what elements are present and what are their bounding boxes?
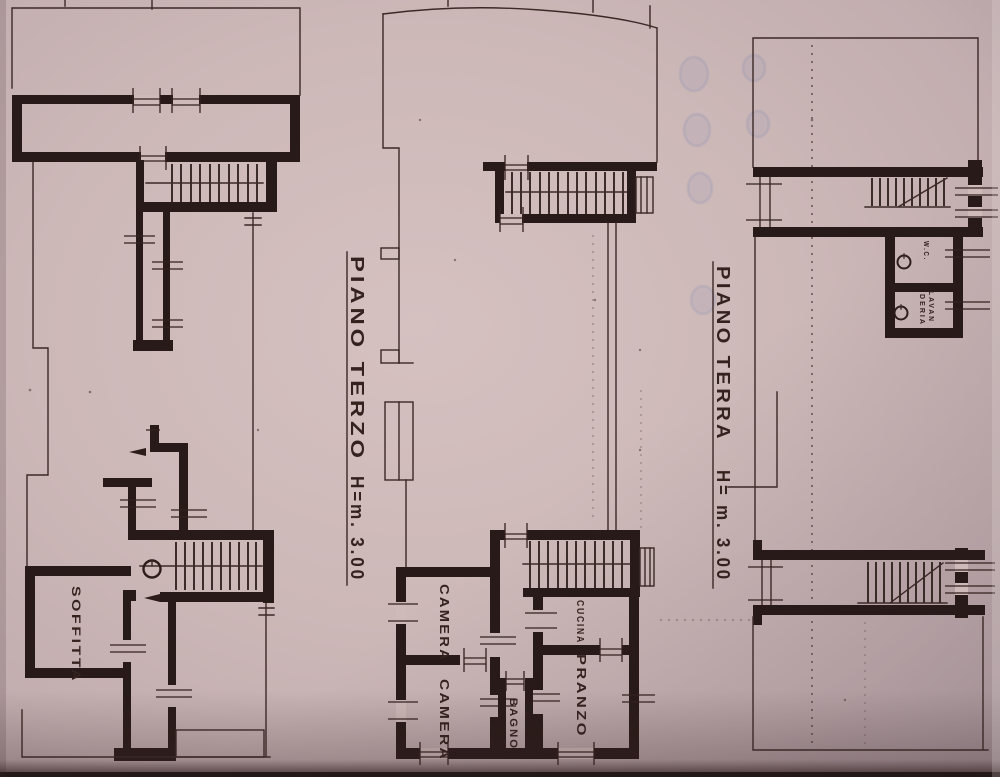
room-label-wc: W.C. bbox=[922, 241, 929, 261]
room-label-camera-1: CAMERA bbox=[437, 584, 452, 662]
photo-bottom-edge bbox=[0, 772, 1000, 777]
floor-plan-scan: SOFFITTA bbox=[0, 0, 1000, 777]
caption-piano-terra-title: PIANO TERRA bbox=[713, 266, 733, 442]
room-label-soffitta: SOFFITTA bbox=[69, 586, 83, 683]
photo-bottom-shadow bbox=[0, 690, 1000, 777]
room-label-cucina: CUCINA bbox=[574, 600, 585, 644]
floor-plan-drawing: SOFFITTA bbox=[0, 0, 1000, 777]
room-label-lavanderia-2: DERIA bbox=[918, 294, 925, 326]
room-label-lavanderia-1: LAVAN bbox=[927, 291, 934, 323]
photo-right-edge bbox=[992, 0, 1000, 777]
caption-piano-terra: PIANO TERRA H= m. 3.00 bbox=[713, 262, 733, 588]
caption-piano-terzo-height: H=m. 3.00 bbox=[347, 476, 367, 582]
caption-piano-terzo: PIANO TERZO H=m. 3.00 bbox=[347, 252, 367, 585]
caption-piano-terzo-title: PIANO TERZO bbox=[347, 256, 367, 462]
photo-left-edge bbox=[0, 0, 6, 777]
